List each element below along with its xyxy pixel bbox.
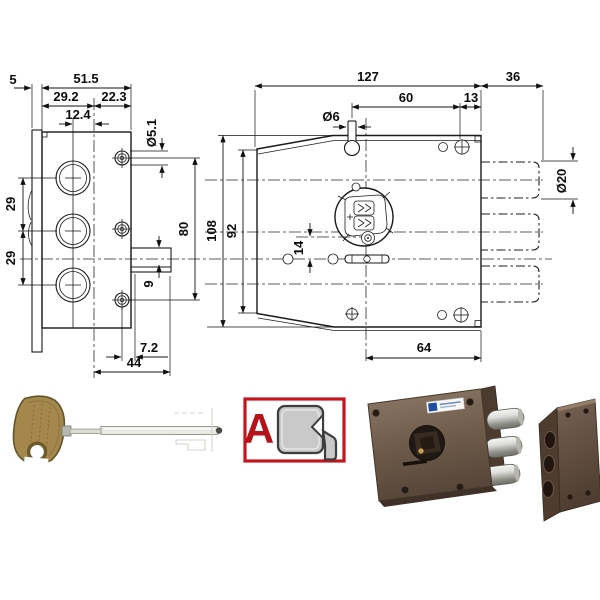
catalog-figure: 5 51.5 29.2 22.3 12.4 Ø5.1 29 29: [0, 0, 600, 600]
dim-screw-span: 80: [176, 222, 191, 236]
dim-bolt-dia: Ø20: [554, 169, 569, 194]
dim-bolt-throw: 36: [506, 69, 520, 84]
side-view: 5 51.5 29.2 22.3 12.4 Ø5.1 29 29: [3, 71, 200, 376]
cylinder-knob: [335, 183, 393, 246]
dim-edge-span: 13: [464, 90, 478, 105]
dim-bolt-pitch-upper: 29: [3, 197, 18, 211]
drawing-canvas: 5 51.5 29.2 22.3 12.4 Ø5.1 29 29: [0, 0, 600, 600]
dim-hole-col-offset: 29.2: [53, 89, 78, 104]
lock-photo: [368, 386, 525, 507]
dim-flange-offset: 7.2: [140, 340, 158, 355]
key-shaft: [101, 427, 218, 435]
centerlines: [20, 98, 552, 378]
dim-pin-span: 60: [399, 90, 413, 105]
variant-badge: A: [244, 399, 344, 461]
strike-front-face: [557, 399, 600, 512]
variant-letter: A: [244, 405, 274, 452]
guide-flange: [131, 248, 171, 272]
dim-body-width: 51.5: [73, 71, 98, 86]
bolt-handle: [345, 255, 389, 263]
screw-holes: [112, 148, 132, 310]
dim-total-height: 108: [204, 220, 219, 242]
strike-box-photo: [539, 399, 600, 521]
front-view: 127 36 60 13 Ø6 Ø20 108 92: [204, 69, 578, 362]
dim-case-width: 127: [357, 69, 379, 84]
dim-bottom-span: 64: [417, 340, 432, 355]
dim-bolt-axis-offset: 12.4: [65, 107, 91, 122]
dim-edge-offset: 22.3: [101, 89, 126, 104]
key-head: [11, 394, 67, 469]
key-stem-thin: [70, 429, 102, 434]
key-photo: [11, 394, 222, 469]
strike-bolt-holes: [543, 432, 556, 498]
dim-flange-thickness: 9: [141, 280, 156, 287]
dim-cyl-offset: 14: [291, 240, 306, 255]
dim-plate-thickness: 5: [9, 72, 16, 87]
faceplate: [28, 130, 42, 352]
stop-pin: [345, 121, 360, 156]
dim-base-width: 44: [127, 355, 142, 370]
dim-screw-hole-dia: Ø5.1: [144, 119, 159, 147]
dim-bolt-pitch-lower: 29: [3, 251, 18, 265]
dim-side-height: 92: [224, 224, 239, 238]
lock-knob: [410, 426, 445, 461]
dim-pin-dia: Ø6: [322, 109, 339, 124]
key-tip: [216, 427, 222, 433]
